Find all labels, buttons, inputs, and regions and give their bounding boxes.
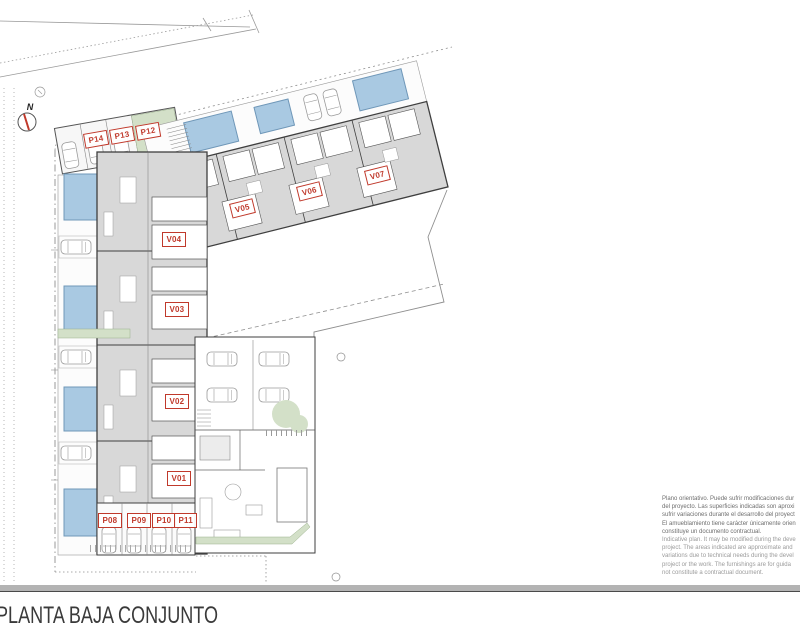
unit-label-v02[interactable]: V02: [165, 394, 189, 409]
disclaimer-line: constituye un documento contractual.: [662, 528, 800, 536]
disclaimer-line: del proyecto. Las superficies indicadas …: [662, 503, 800, 511]
bed: [200, 436, 230, 460]
left-wing-gardens: [58, 174, 98, 555]
north-arrow-icon: N: [18, 102, 36, 131]
disclaimer-line: project or the work. The furnishings are…: [662, 561, 800, 569]
courtyard-block: [195, 337, 315, 553]
street-lines: [0, 10, 259, 97]
disclaimer-line: variations due to technical needs during…: [662, 552, 800, 560]
pool: [64, 387, 97, 431]
unit-label-v01[interactable]: V01: [167, 471, 191, 486]
car-icon: [152, 527, 166, 553]
disclaimer-line: project. The areas indicated are approxi…: [662, 544, 800, 552]
disclaimer-line: sufrir variaciones durante el desarrollo…: [662, 511, 800, 519]
unit-label-p11[interactable]: P11: [174, 513, 197, 528]
car-icon: [259, 352, 289, 366]
unit-label-p08[interactable]: P08: [98, 513, 122, 528]
road-bar: [0, 585, 800, 592]
left-road-markings: [4, 88, 14, 584]
unit-label-p09[interactable]: P09: [127, 513, 151, 528]
disclaimer-text: Plano orientativo. Puede sufrir modifica…: [662, 495, 800, 577]
garden-strip: [58, 329, 130, 338]
car-icon: [61, 240, 91, 254]
car-icon: [61, 350, 91, 364]
disclaimer-line: Plano orientativo. Puede sufrir modifica…: [662, 495, 800, 503]
disclaimer-line: El amueblamiento tiene carácter únicamen…: [662, 520, 800, 528]
car-icon: [102, 527, 116, 553]
disclaimer-line: Indicative plan. It may be modified duri…: [662, 536, 800, 544]
unit-label-v04[interactable]: V04: [162, 232, 186, 247]
patio: [277, 468, 307, 522]
car-icon: [207, 388, 237, 402]
car-icon: [61, 446, 91, 460]
pool: [64, 286, 97, 333]
disclaimer-line: not constitute a contractual document.: [662, 569, 800, 577]
unit-label-p10[interactable]: P10: [152, 513, 176, 528]
unit-label-v03[interactable]: V03: [165, 302, 189, 317]
sheet-title: PLANTA BAJA CONJUNTO: [0, 602, 218, 629]
pool: [64, 489, 97, 536]
car-icon: [207, 352, 237, 366]
pool: [64, 174, 97, 220]
car-icon: [259, 388, 289, 402]
car-icon: [177, 527, 191, 553]
north-label: N: [27, 102, 34, 112]
car-icon: [127, 527, 141, 553]
